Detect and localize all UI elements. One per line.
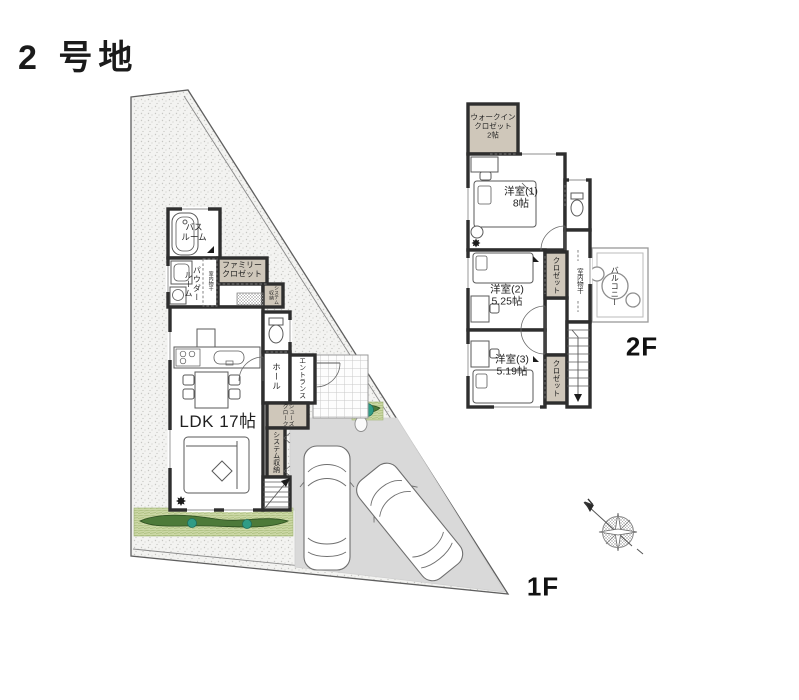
hall-label: ホール (272, 363, 281, 392)
ldk-label: LDK 17帖 (179, 412, 256, 432)
kitchen-island (197, 329, 215, 347)
room3-label: 洋室(3) 5.19帖 (495, 354, 529, 379)
corridor-counter (237, 293, 263, 305)
walk-in-closet-label: ウォークイン クロゼット 2帖 (471, 114, 516, 141)
garden-bush (243, 520, 252, 529)
balcony-2f (590, 248, 648, 322)
page-title: 2 号地 (18, 30, 138, 79)
stepping-stone (355, 417, 367, 432)
toilet-icon-1f (269, 318, 283, 343)
sofa (184, 437, 249, 493)
toilet-icon-2f (571, 193, 583, 216)
room2-label: 洋室(2) 5.25帖 (490, 284, 524, 309)
compass-icon (585, 503, 643, 554)
entrance-label: エントランス (298, 357, 305, 399)
floor-plan-drawing (0, 0, 799, 700)
floor-1f-label: 1F (527, 572, 559, 603)
balcony-chair (626, 293, 640, 307)
shoes-closet-label: シューズ クローク (281, 403, 293, 426)
system-storage-small-label: システム 収納 (268, 285, 278, 304)
closet-room2-label: クロゼット (552, 256, 560, 294)
kitchen-counter (174, 347, 260, 368)
indoor-drying-label-2f: 室内物干 (575, 268, 582, 294)
stool-room1 (471, 226, 483, 238)
garden-bush (188, 519, 197, 528)
system-storage-label: システム収納 (272, 431, 279, 473)
bathroom-label: バス ルーム (181, 222, 206, 242)
indoor-drying-label-1f: 室内物干 (207, 271, 212, 291)
floor-plan-page: 2 号地 バス ルーム パウダー ルーム 室内物干 ファミリー クロゼット シス… (0, 0, 799, 700)
car-icon-1 (300, 446, 354, 570)
powder-room-label: パウダー ルーム (184, 266, 201, 302)
family-closet-label: ファミリー クロゼット (222, 261, 262, 280)
hall-2f-inner (545, 298, 567, 355)
closet-room3-label: クロゼット (552, 359, 560, 397)
room1-label: 洋室(1) 8帖 (504, 186, 538, 211)
bed-room2 (473, 253, 533, 283)
balcony-label: バルコニー (610, 266, 618, 306)
floor-2f-label: 2F (626, 332, 658, 363)
